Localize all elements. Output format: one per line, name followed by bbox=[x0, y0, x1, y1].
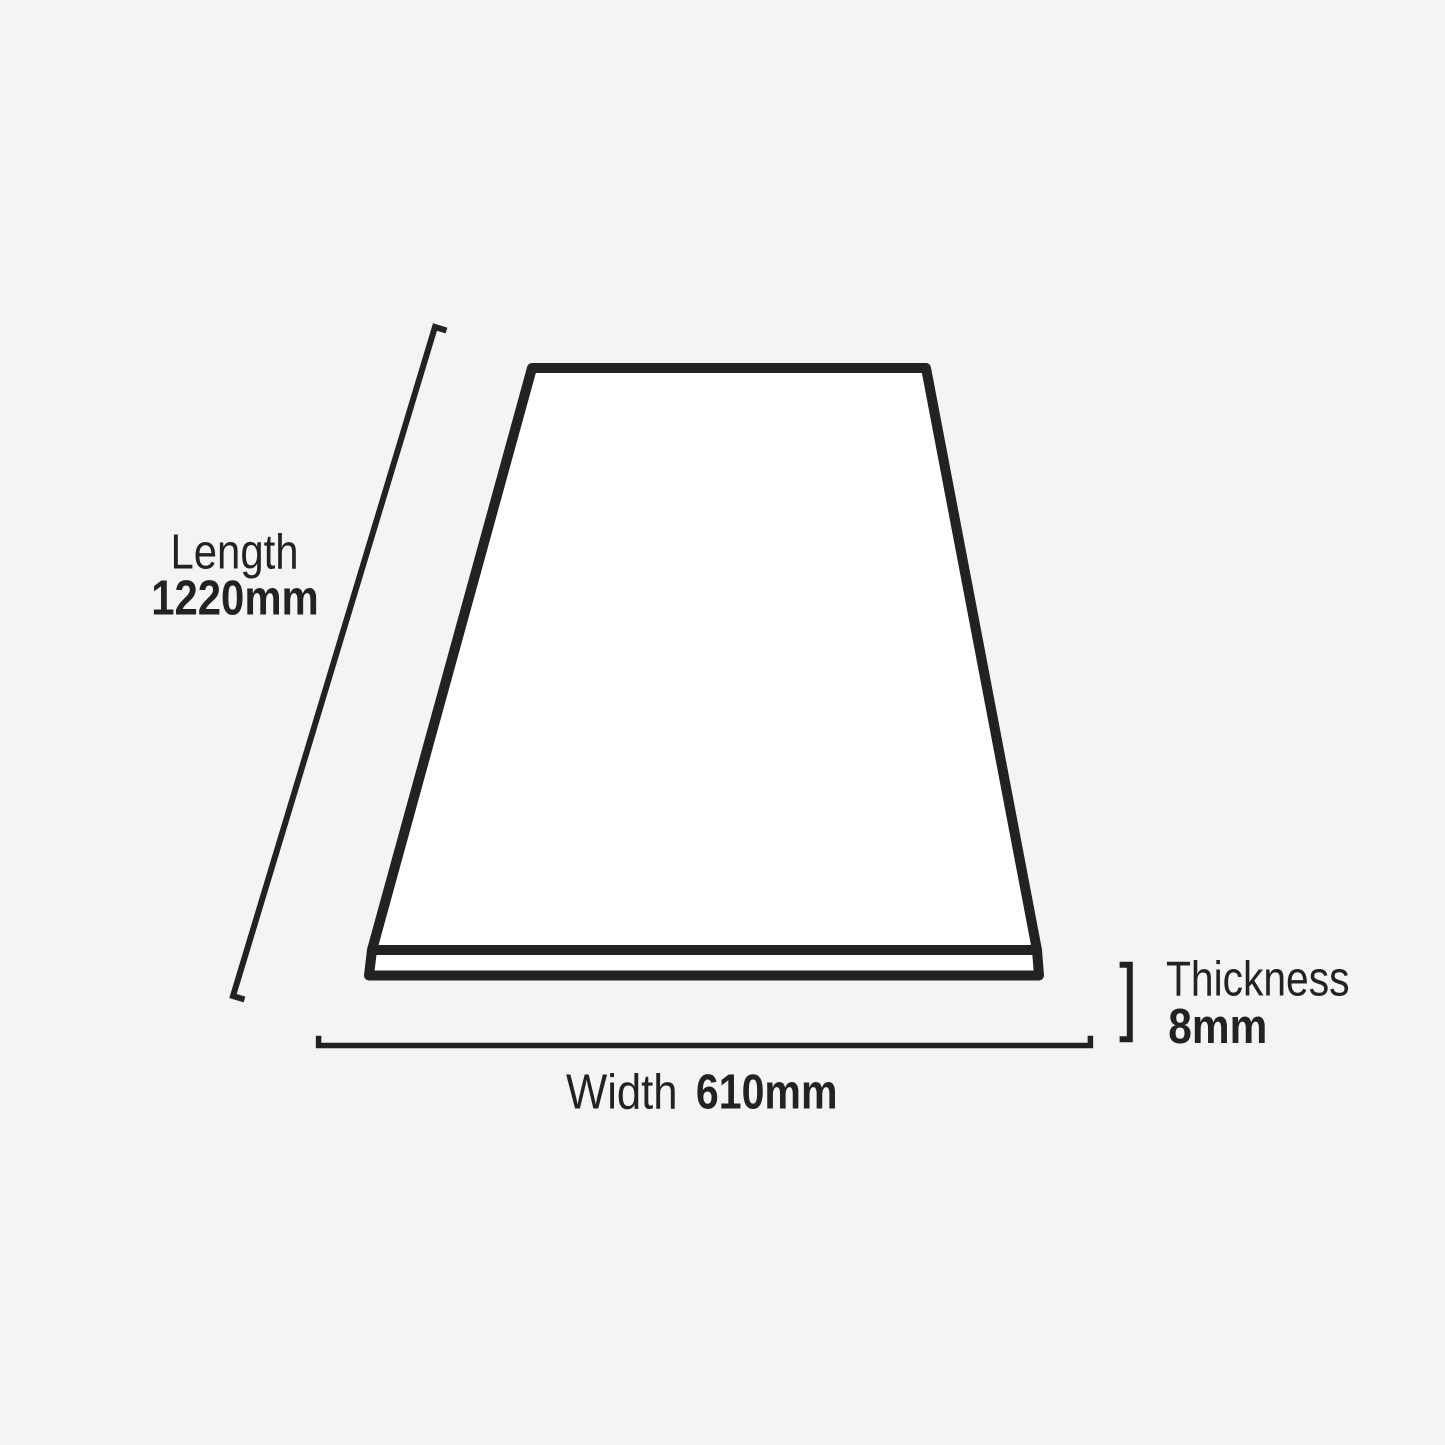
svg-text:Width: Width bbox=[566, 1065, 678, 1119]
svg-text:1220mm: 1220mm bbox=[151, 572, 319, 626]
svg-text:8mm: 8mm bbox=[1168, 1000, 1267, 1054]
svg-text:Thickness: Thickness bbox=[1166, 952, 1350, 1006]
svg-text:610mm: 610mm bbox=[696, 1065, 838, 1119]
